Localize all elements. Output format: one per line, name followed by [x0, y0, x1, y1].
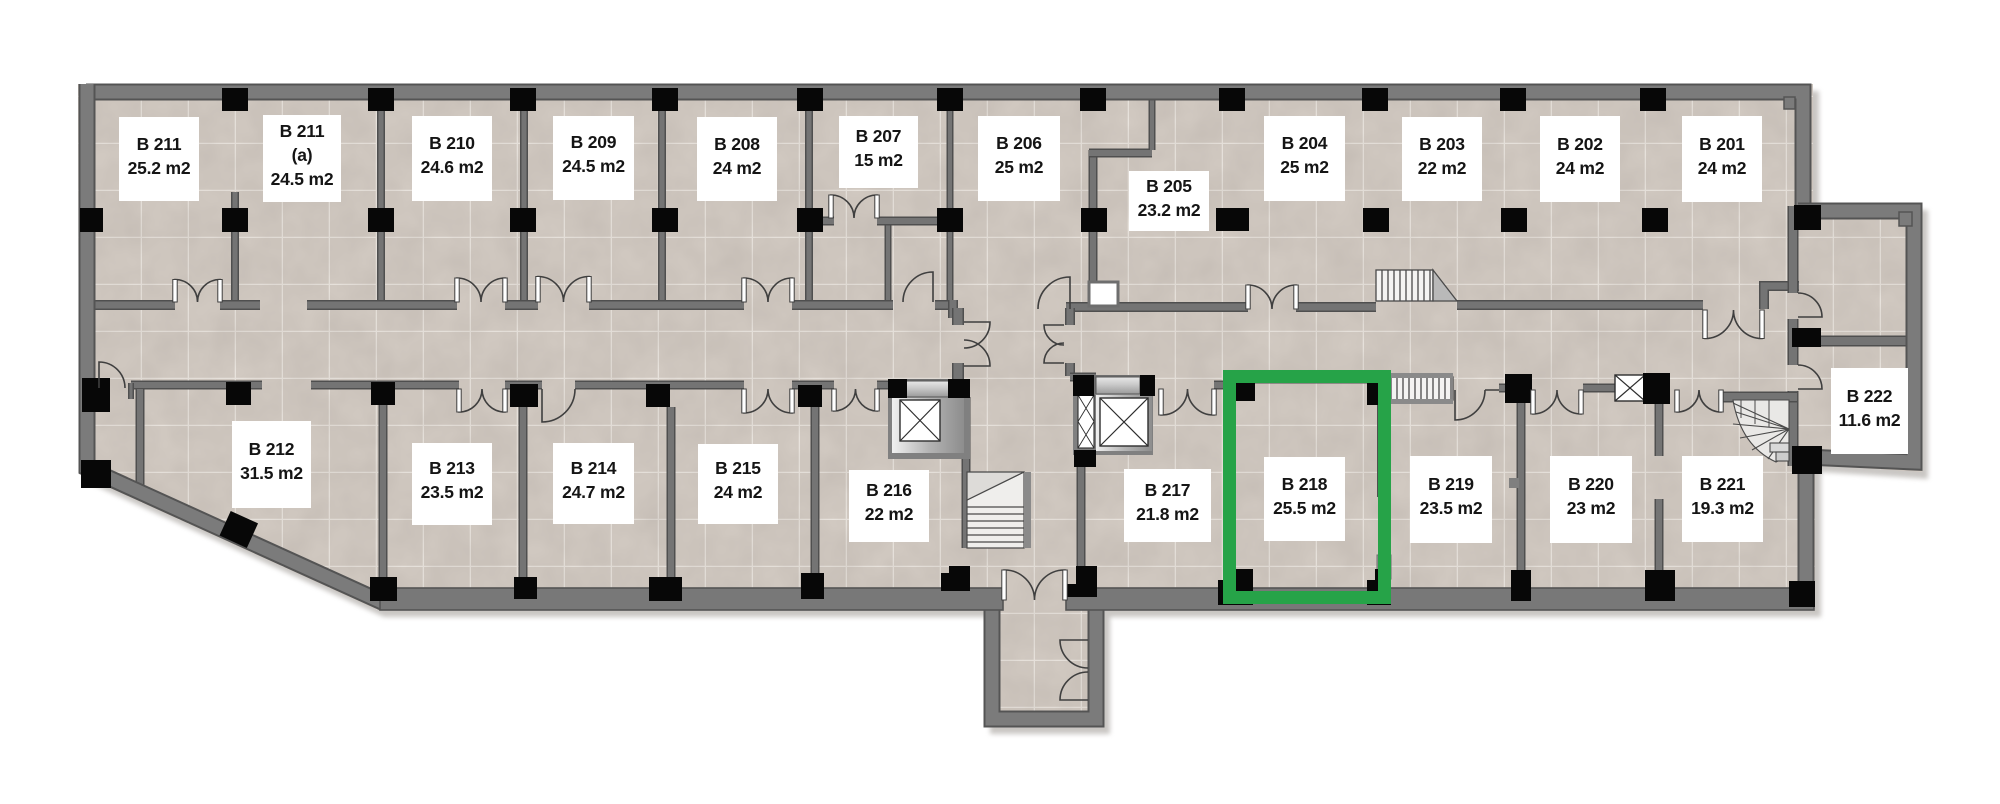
svg-text:B 210: B 210	[429, 133, 475, 153]
svg-text:B 211: B 211	[280, 121, 325, 141]
svg-text:B 203: B 203	[1419, 134, 1465, 154]
svg-text:25 m2: 25 m2	[995, 157, 1044, 177]
svg-text:B 208: B 208	[714, 134, 760, 154]
svg-text:24 m2: 24 m2	[1556, 158, 1605, 178]
svg-text:B 220: B 220	[1568, 474, 1614, 494]
svg-text:24.6 m2: 24.6 m2	[421, 157, 484, 177]
svg-text:22 m2: 22 m2	[865, 504, 914, 524]
svg-text:B 205: B 205	[1146, 176, 1192, 196]
svg-text:24 m2: 24 m2	[1698, 158, 1747, 178]
svg-text:25.2 m2: 25.2 m2	[128, 158, 191, 178]
svg-text:24.5 m2: 24.5 m2	[271, 169, 334, 189]
svg-text:B 201: B 201	[1699, 134, 1745, 154]
svg-text:B 216: B 216	[866, 480, 912, 500]
svg-text:23 m2: 23 m2	[1567, 498, 1616, 518]
svg-text:23.5 m2: 23.5 m2	[421, 482, 484, 502]
svg-text:B 217: B 217	[1145, 480, 1191, 500]
svg-text:B 212: B 212	[249, 439, 295, 459]
svg-text:B 222: B 222	[1847, 386, 1893, 406]
svg-text:21.8 m2: 21.8 m2	[1136, 504, 1199, 524]
svg-text:B 207: B 207	[856, 126, 902, 146]
svg-text:B 214: B 214	[571, 458, 617, 478]
svg-text:25.5 m2: 25.5 m2	[1273, 498, 1336, 518]
svg-text:24 m2: 24 m2	[713, 158, 762, 178]
svg-text:22 m2: 22 m2	[1418, 158, 1467, 178]
svg-text:31.5 m2: 31.5 m2	[240, 463, 303, 483]
svg-text:B 204: B 204	[1282, 133, 1328, 153]
svg-text:B 213: B 213	[429, 458, 475, 478]
svg-text:25 m2: 25 m2	[1280, 157, 1329, 177]
svg-text:24 m2: 24 m2	[714, 482, 763, 502]
svg-text:B 211: B 211	[137, 134, 182, 154]
svg-text:11.6 m2: 11.6 m2	[1839, 410, 1901, 430]
svg-text:B 221: B 221	[1700, 474, 1746, 494]
svg-text:B 202: B 202	[1557, 134, 1603, 154]
svg-text:B 206: B 206	[996, 133, 1042, 153]
svg-text:24.7 m2: 24.7 m2	[562, 482, 625, 502]
svg-text:B 209: B 209	[571, 132, 617, 152]
svg-text:15 m2: 15 m2	[854, 150, 903, 170]
svg-text:B 218: B 218	[1282, 474, 1328, 494]
svg-text:23.5 m2: 23.5 m2	[1420, 498, 1483, 518]
svg-text:B 215: B 215	[715, 458, 761, 478]
svg-text:23.2 m2: 23.2 m2	[1138, 200, 1201, 220]
svg-text:24.5 m2: 24.5 m2	[562, 156, 625, 176]
svg-text:(a): (a)	[292, 145, 313, 165]
svg-text:B 219: B 219	[1428, 474, 1474, 494]
svg-text:19.3 m2: 19.3 m2	[1691, 498, 1754, 518]
